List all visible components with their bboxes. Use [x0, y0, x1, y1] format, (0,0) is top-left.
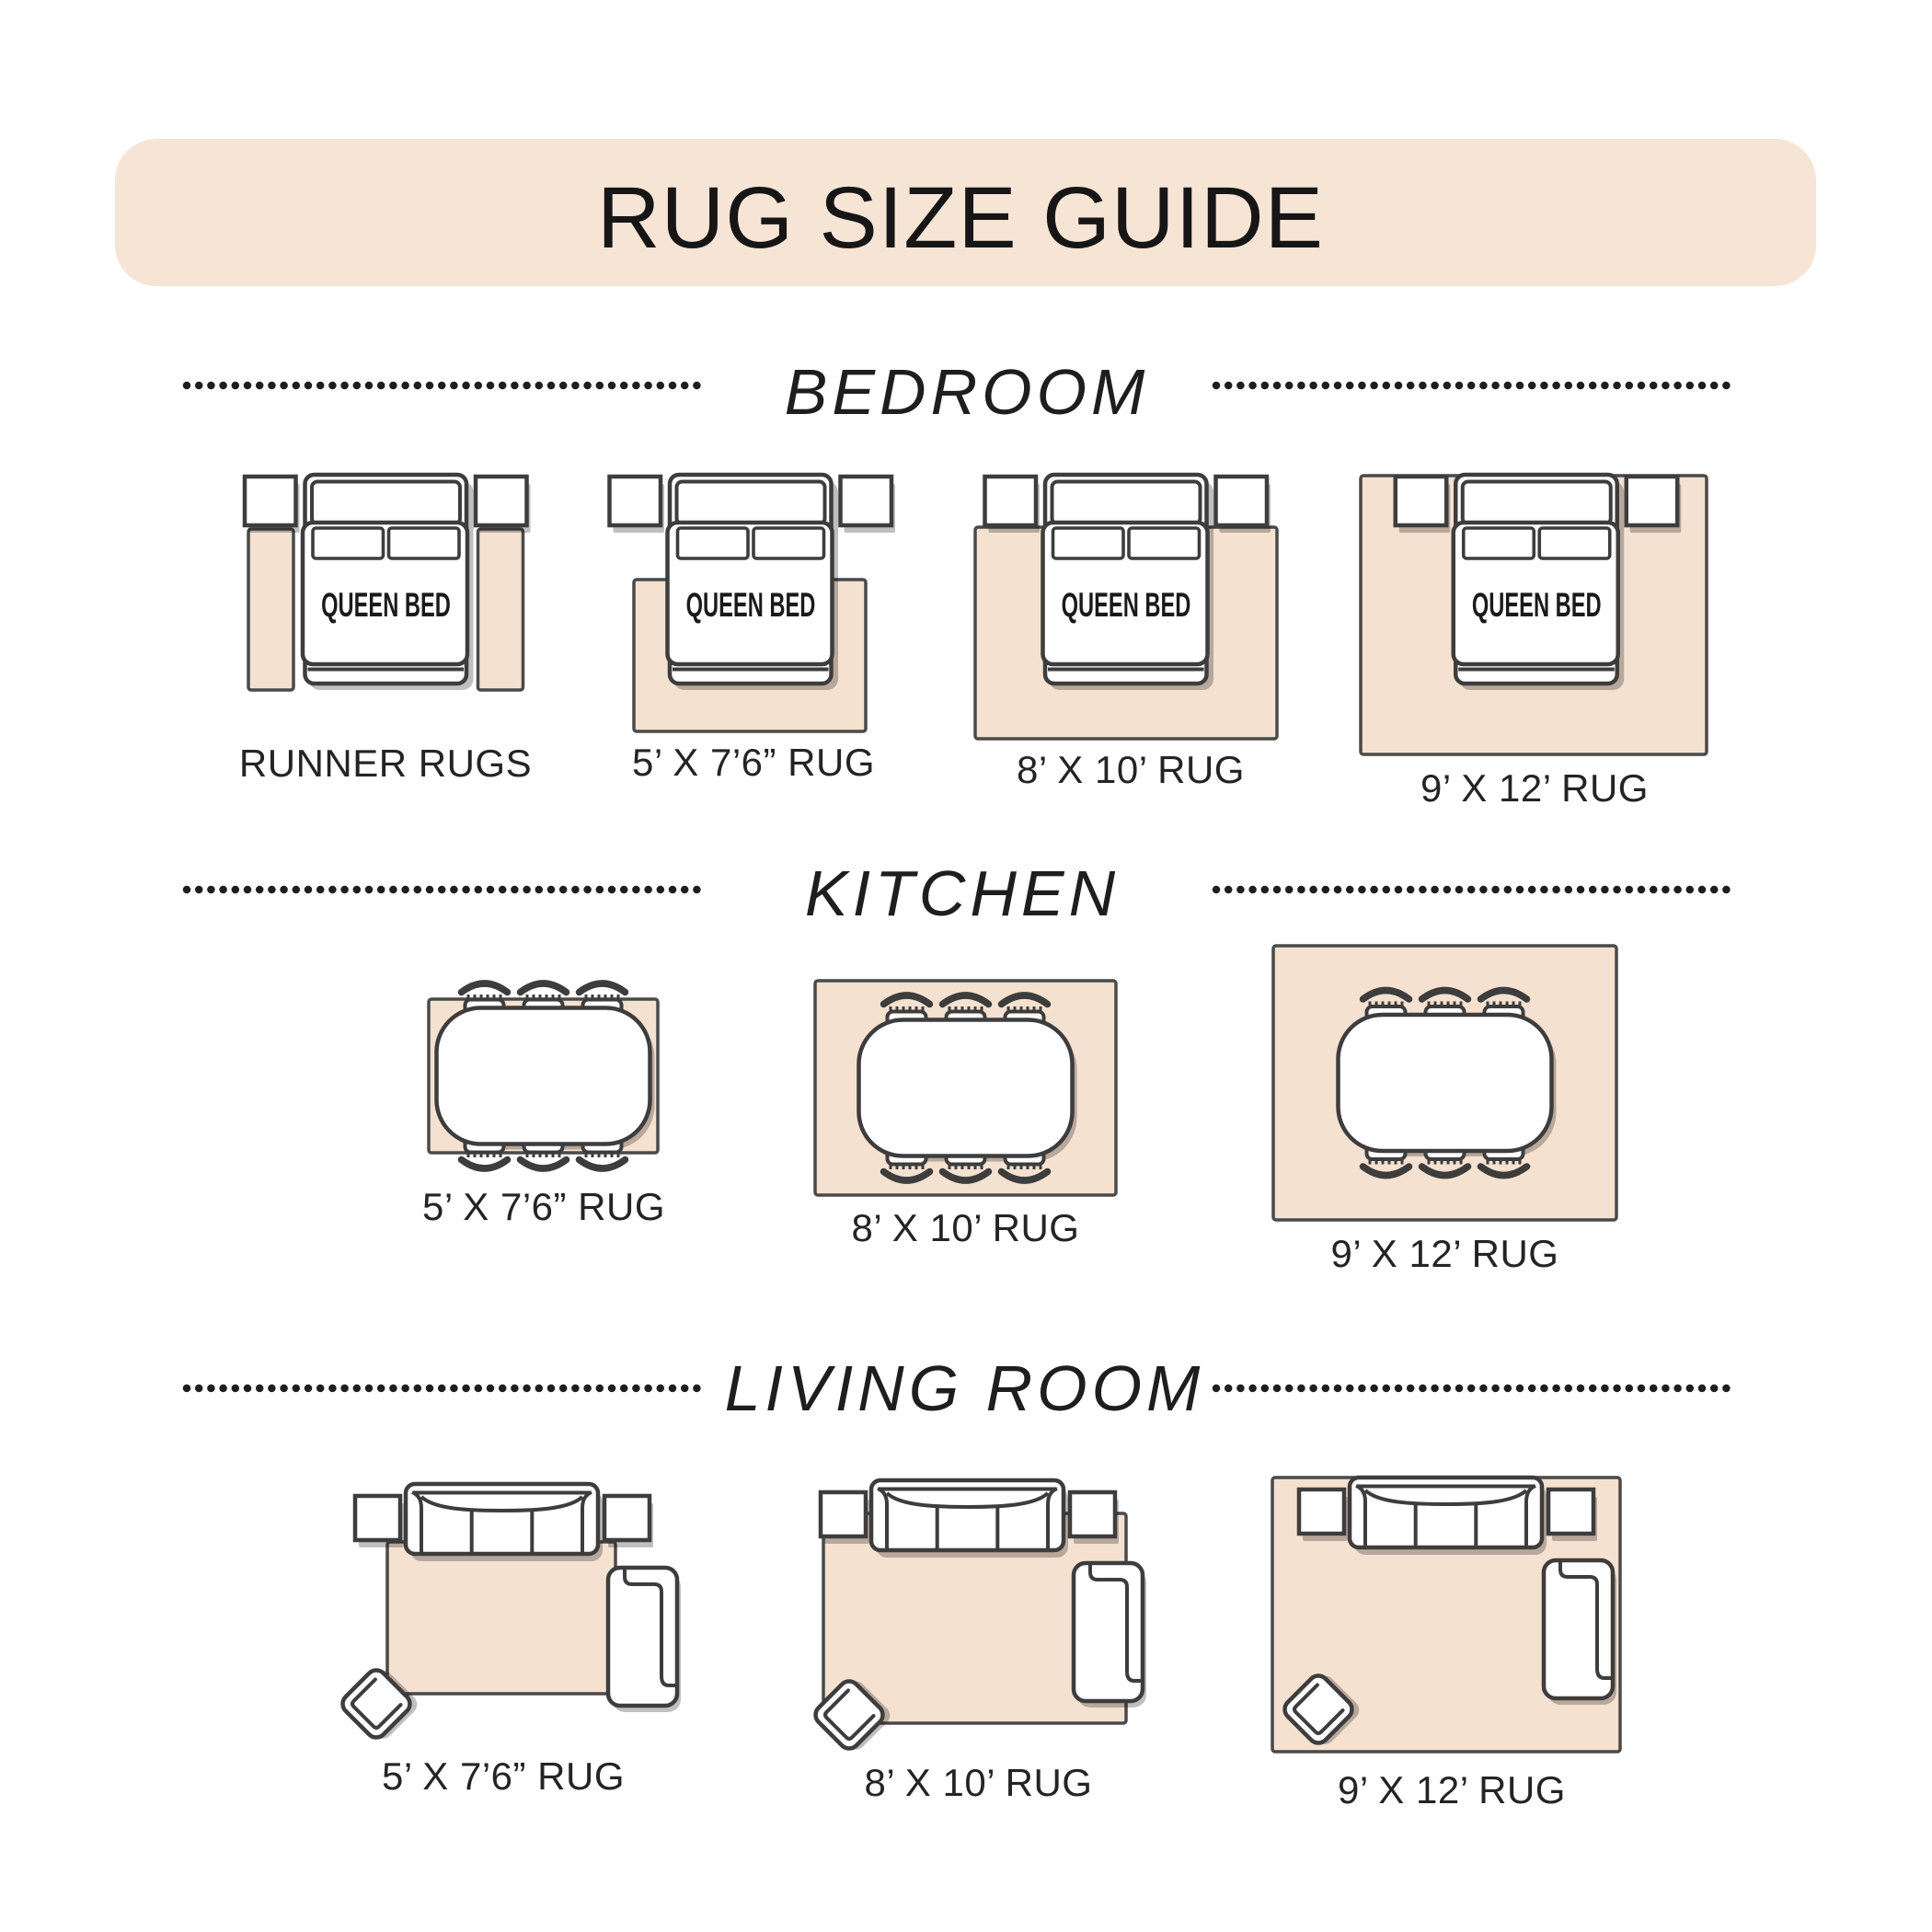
- svg-text:8’ X 10’ RUG: 8’ X 10’ RUG: [852, 1206, 1080, 1249]
- svg-text:9’ X 12’ RUG: 9’ X 12’ RUG: [1331, 1232, 1559, 1275]
- svg-text:RUG SIZE GUIDE: RUG SIZE GUIDE: [597, 169, 1324, 267]
- svg-text:RUNNER RUGS: RUNNER RUGS: [239, 742, 532, 785]
- svg-text:5’ X 7’6” RUG: 5’ X 7’6” RUG: [422, 1185, 665, 1228]
- svg-text:8’ X 10’ RUG: 8’ X 10’ RUG: [1017, 748, 1245, 791]
- svg-text:KITCHEN: KITCHEN: [805, 857, 1120, 929]
- svg-text:9’ X 12’ RUG: 9’ X 12’ RUG: [1338, 1768, 1566, 1811]
- svg-text:5’ X 7’6” RUG: 5’ X 7’6” RUG: [632, 741, 875, 784]
- svg-text:5’ X 7’6” RUG: 5’ X 7’6” RUG: [382, 1754, 625, 1798]
- svg-text:LIVING ROOM: LIVING ROOM: [725, 1352, 1205, 1424]
- svg-text:BEDROOM: BEDROOM: [785, 356, 1150, 428]
- svg-text:8’ X 10’ RUG: 8’ X 10’ RUG: [865, 1761, 1093, 1804]
- svg-text:9’ X 12’ RUG: 9’ X 12’ RUG: [1420, 766, 1649, 810]
